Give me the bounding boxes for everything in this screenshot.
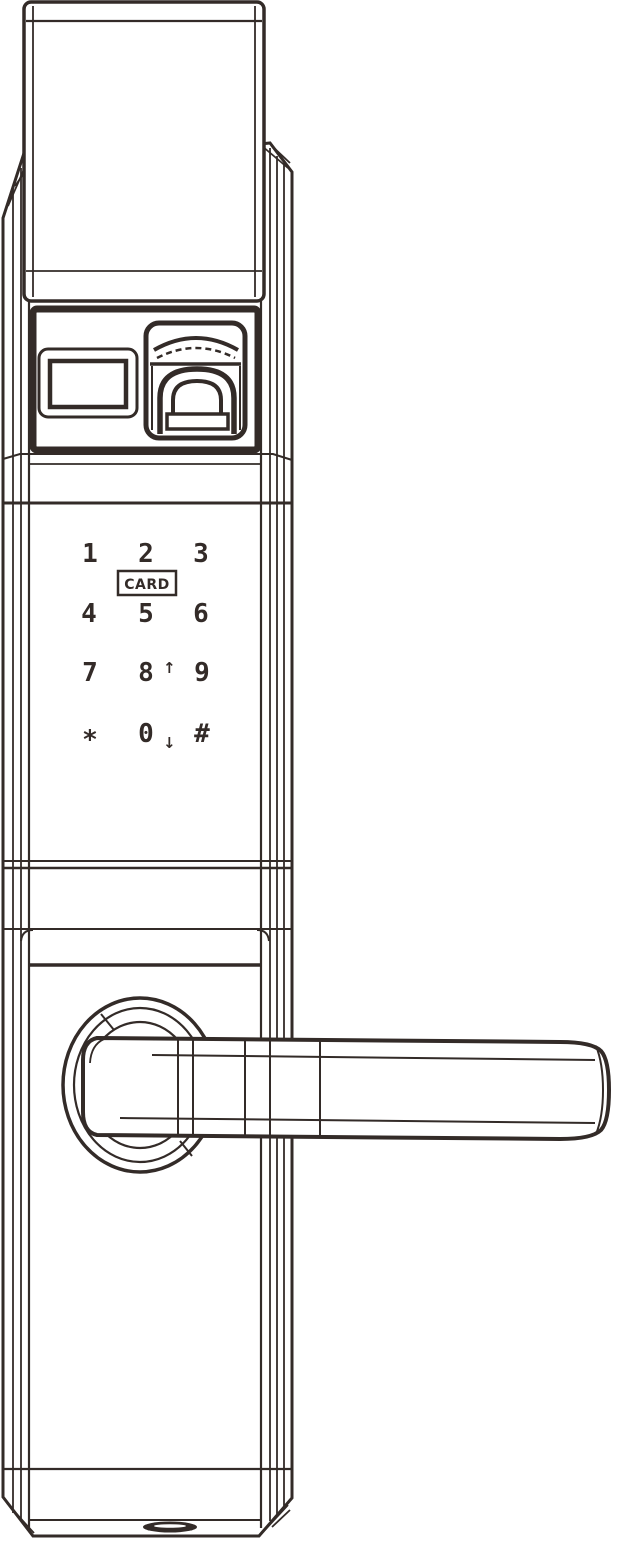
top-cap-outline [24,2,264,301]
key-6: 6 [193,599,209,629]
down-arrow-icon: ↓ [163,734,176,752]
key-9: 9 [194,658,210,688]
top-cap [24,2,264,301]
up-arrow-icon: ↑ [163,659,176,677]
key-5: 5 [138,599,154,629]
bottom-port [143,1522,197,1533]
key-1: 1 [82,539,98,569]
key-8: 8 [138,658,154,688]
card-indicator: CARD [118,571,176,595]
lever-outline [83,1038,609,1139]
display-window [39,349,137,417]
key-3: 3 [193,539,209,569]
display-screen [50,361,126,407]
key-7: 7 [82,658,98,688]
bottom-port-slit [154,1524,186,1528]
card-indicator-label: CARD [124,577,170,593]
key-4: 4 [81,599,97,629]
fingerprint-scanner [146,323,245,438]
key-hash: # [194,719,210,749]
handle-lever [83,1038,609,1139]
illustration-canvas: 1 2 3 CARD 4 5 6 7 8 ↑ 9 * 0 ↓ # [0,0,617,1541]
door-lock-technical-drawing: 1 2 3 CARD 4 5 6 7 8 ↑ 9 * 0 ↓ # [0,0,617,1541]
fingerprint-pad [167,414,228,429]
key-0: 0 [138,719,154,749]
sensor-panel [33,309,258,450]
key-star: * [82,725,98,755]
key-2: 2 [138,539,154,569]
